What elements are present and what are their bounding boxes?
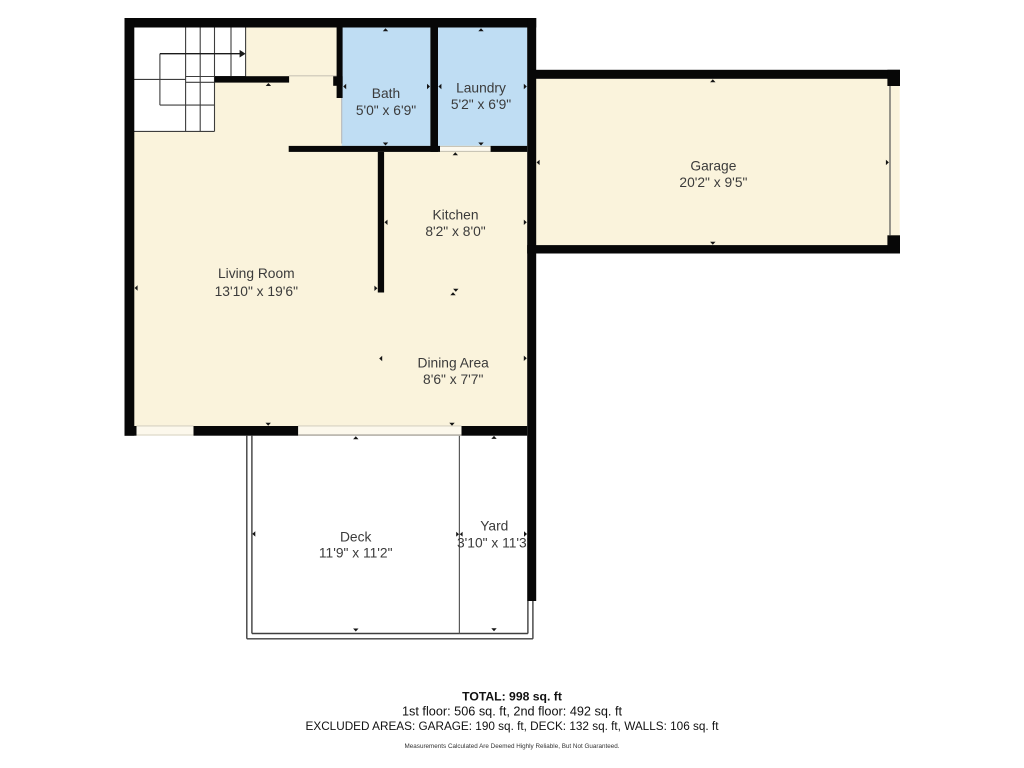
svg-text:Kitchen: Kitchen [432,207,478,222]
svg-text:EXCLUDED AREAS: GARAGE: 190 sq: EXCLUDED AREAS: GARAGE: 190 sq. ft, DECK… [306,720,720,733]
svg-text:5'2" x 6'9": 5'2" x 6'9" [451,97,511,112]
svg-text:Measurements Calculated Are De: Measurements Calculated Are Deemed Highl… [405,743,620,750]
svg-text:20'2" x 9'5": 20'2" x 9'5" [679,175,747,190]
svg-text:5'0" x 6'9": 5'0" x 6'9" [356,103,416,118]
svg-text:1st floor: 506 sq. ft, 2nd flo: 1st floor: 506 sq. ft, 2nd floor: 492 sq… [402,704,623,718]
svg-text:TOTAL: 998 sq. ft: TOTAL: 998 sq. ft [462,690,562,704]
svg-text:Living Room: Living Room [218,266,295,281]
svg-text:8'6" x 7'7": 8'6" x 7'7" [423,372,483,387]
svg-text:Bath: Bath [372,86,400,101]
svg-text:Garage: Garage [690,158,736,173]
svg-text:13'10" x 19'6": 13'10" x 19'6" [215,284,298,299]
svg-text:11'9" x 11'2": 11'9" x 11'2" [319,546,393,561]
svg-text:3'10" x 11'3": 3'10" x 11'3" [457,535,532,550]
svg-text:Laundry: Laundry [456,80,506,95]
svg-text:Yard: Yard [480,518,508,533]
svg-text:Deck: Deck [340,530,372,545]
svg-text:8'2" x 8'0": 8'2" x 8'0" [425,224,485,239]
svg-text:Dining Area: Dining Area [418,355,490,370]
